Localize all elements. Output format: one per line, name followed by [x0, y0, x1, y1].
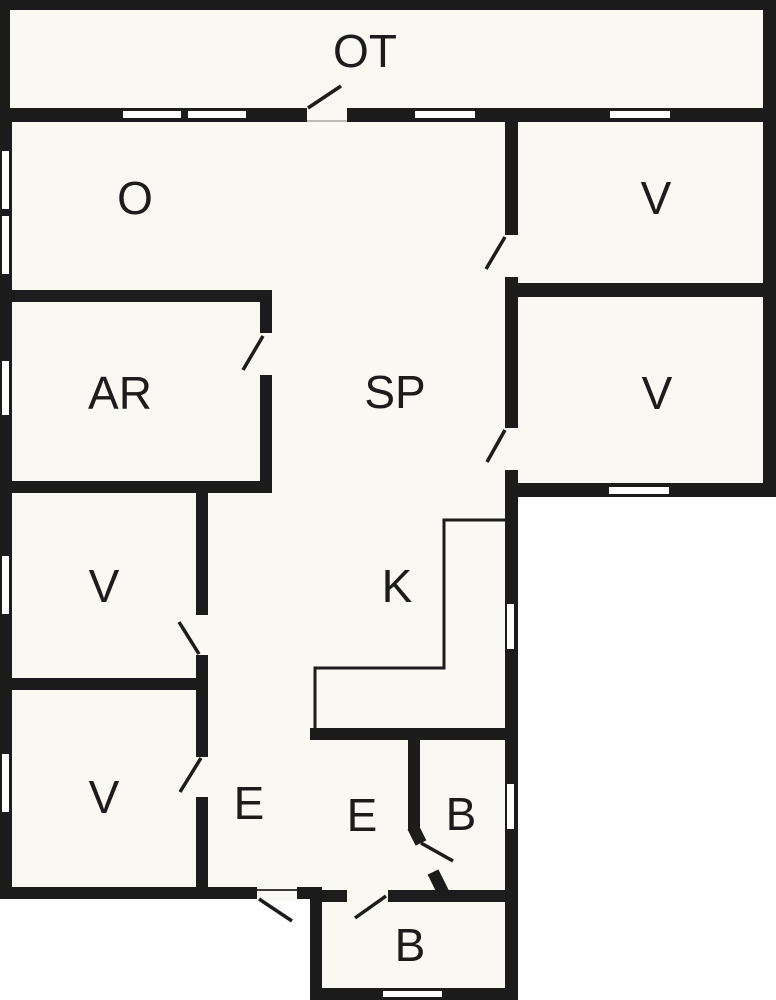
room-label-v1: V [641, 172, 672, 224]
window-marker [1, 753, 10, 813]
door-opening [503, 428, 520, 470]
room-label-e1: E [234, 777, 265, 829]
floor-plan: OT O V AR SP V V K V E E B B [0, 0, 776, 1000]
room-label-o: O [117, 172, 153, 224]
room-label-b1: B [446, 788, 477, 840]
window-marker [187, 110, 247, 119]
window-marker [414, 110, 476, 119]
wall-segment [0, 678, 208, 690]
room-label-k: K [382, 560, 413, 612]
window-marker [608, 486, 670, 495]
door-opening [503, 235, 520, 277]
room-label-b2: B [395, 919, 426, 971]
door-opening [308, 800, 324, 862]
door-opening [347, 888, 388, 904]
wall-segment [0, 0, 776, 10]
window-marker [122, 110, 182, 119]
window-marker [1, 215, 10, 275]
room-label-sp: SP [364, 366, 425, 418]
wall-segment [0, 290, 272, 302]
window-marker [506, 783, 515, 830]
window-marker [1, 555, 10, 615]
floor-plan-svg: OT O V AR SP V V K V E E B B [0, 0, 776, 1000]
room-label-v2: V [642, 367, 673, 419]
wall-segment-chamfer [413, 827, 421, 843]
room-label-v3: V [89, 560, 120, 612]
window-marker [506, 603, 515, 650]
room-label-e2: E [347, 789, 378, 841]
window-marker [382, 990, 443, 998]
window-marker [1, 150, 10, 210]
wall-segment [310, 893, 322, 1000]
wall-segment [0, 481, 272, 493]
window-marker [609, 110, 671, 119]
room-label-ar: AR [88, 367, 152, 419]
wall-segment [517, 283, 763, 297]
room-label-v4: V [89, 771, 120, 823]
door-swing-line [259, 899, 292, 921]
wall-segment [0, 0, 10, 120]
building-footprint [0, 0, 776, 1000]
room-label-ot: OT [333, 25, 397, 77]
wall-segment [260, 290, 272, 493]
wall-segment [408, 740, 420, 831]
wall-segment [310, 728, 518, 740]
door-opening [257, 885, 297, 901]
wall-segment [763, 0, 776, 497]
window-marker [1, 360, 10, 416]
